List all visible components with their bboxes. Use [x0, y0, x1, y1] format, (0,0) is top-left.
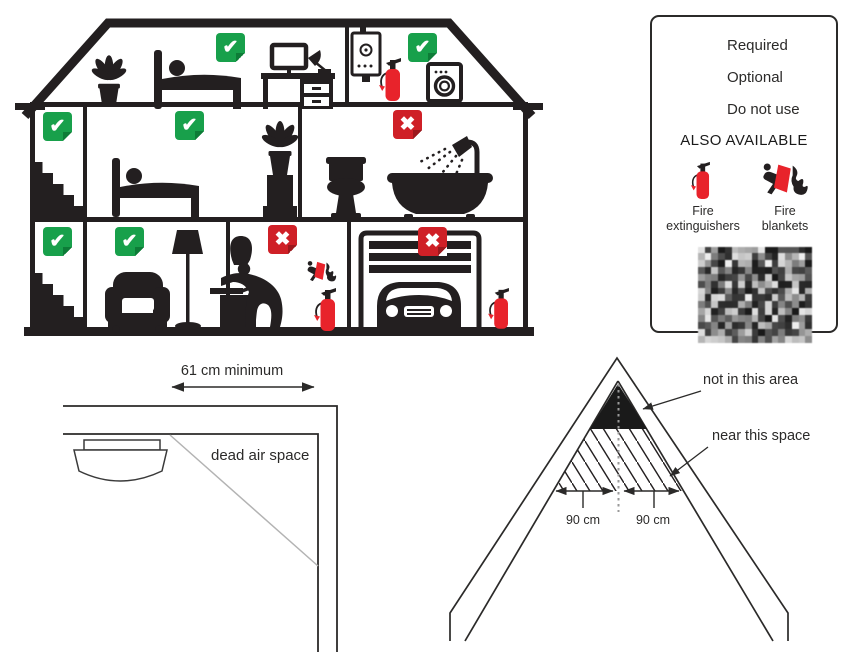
smoke-detector-placement-page: 61 cm minimum dead air space 90 cm 90 cm…: [0, 0, 847, 652]
toilet-icon: [326, 157, 366, 220]
fire-blanket-icon: [308, 261, 337, 281]
fire-extinguisher-icon: [379, 58, 401, 101]
check-icon: ✔: [122, 232, 138, 251]
product-label: Fire blankets: [762, 204, 809, 234]
near-this-space-arrow: [670, 447, 708, 476]
roof-peak-diagram: 90 cm 90 cm not in this area near this s…: [450, 358, 810, 641]
qr-code: [698, 247, 812, 343]
product-fire-extinguishers: Fire extinguishers: [662, 161, 744, 234]
also-available-heading: ALSO AVAILABLE: [652, 132, 836, 149]
legend-item-required: ✔ Required: [690, 32, 836, 59]
marker-ground-stairwell-required: ✔: [43, 227, 72, 256]
required-check-icon: ✔: [690, 33, 716, 59]
check-icon: ✔: [50, 117, 66, 136]
do-not-use-cross-icon: ✖: [690, 97, 716, 123]
optional-check-icon: ✔: [690, 65, 716, 91]
product-fire-blankets: Fire blankets: [744, 161, 826, 234]
left-measure-label: 90 cm: [566, 513, 600, 527]
marker-middle-bedroom-required: ✔: [175, 111, 204, 140]
marker-living-room-required: ✔: [115, 227, 144, 256]
legend-label: Required: [727, 37, 788, 54]
attic-bedroom: [90, 45, 335, 109]
cross-icon: ✖: [275, 230, 291, 249]
right-measure-label: 90 cm: [636, 513, 670, 527]
check-icon: ✔: [182, 116, 198, 135]
desk-computer-icon: [261, 45, 335, 109]
bathtub-shower-icon: [387, 136, 493, 220]
bathroom: [326, 136, 493, 220]
near-this-space-label: near this space: [712, 428, 810, 444]
floor-lamp-icon: [172, 230, 203, 330]
fire-blanket-icon: [761, 161, 809, 199]
cross-icon: ✖: [400, 115, 416, 134]
product-label: Fire extinguishers: [666, 204, 740, 234]
fire-extinguisher-icon: [488, 288, 509, 329]
marker-bathroom-do-not-use: ✖: [393, 110, 422, 139]
attic-utility-room: [352, 22, 461, 101]
plant-pedestal-icon: [260, 121, 300, 217]
check-icon: ✔: [415, 38, 431, 57]
products-row: Fire extinguishers Fire blankets: [652, 161, 836, 234]
middle-stairwell: [32, 162, 84, 217]
ground-stairwell: [32, 273, 84, 328]
ceiling-corner-diagram: 61 cm minimum dead air space: [63, 363, 337, 652]
marker-attic-utility-required: ✔: [408, 33, 437, 62]
boiler-icon: [352, 22, 380, 82]
dead-air-space-label: dead air space: [211, 447, 309, 464]
fire-extinguisher-icon: [314, 288, 336, 331]
marker-garage-do-not-use: ✖: [418, 227, 447, 256]
legend-label: Optional: [727, 69, 783, 86]
house-cross-section: [15, 22, 543, 336]
not-in-this-area-label: not in this area: [703, 372, 799, 388]
check-icon: ✔: [223, 38, 239, 57]
legend-panel: ✔ Required ✔ Optional ✖ Do not use ALSO …: [650, 15, 838, 333]
measurement-label: 61 cm minimum: [181, 363, 283, 379]
stairs-icon: [32, 273, 84, 328]
marker-kitchen-do-not-use: ✖: [268, 225, 297, 254]
middle-bedroom: [112, 121, 300, 217]
legend-label: Do not use: [727, 101, 800, 118]
car-icon: [377, 282, 461, 327]
bed-icon: [112, 158, 199, 217]
washing-machine-icon: [428, 64, 461, 101]
smoke-detector-icon: [74, 440, 167, 481]
marker-middle-stairwell-required: ✔: [43, 112, 72, 141]
legend-item-do-not-use: ✖ Do not use: [690, 96, 836, 123]
desk-lamp-icon: [308, 50, 331, 73]
check-icon: ✔: [50, 232, 66, 251]
plant-icon: [90, 55, 128, 106]
not-in-this-area-arrow: [643, 391, 701, 409]
legend-item-optional: ✔ Optional: [690, 64, 836, 91]
cross-icon: ✖: [425, 232, 441, 251]
marker-attic-bedroom-required: ✔: [216, 33, 245, 62]
fire-extinguisher-icon: [691, 161, 715, 199]
stairs-icon: [32, 162, 84, 217]
armchair-icon: [105, 272, 170, 333]
